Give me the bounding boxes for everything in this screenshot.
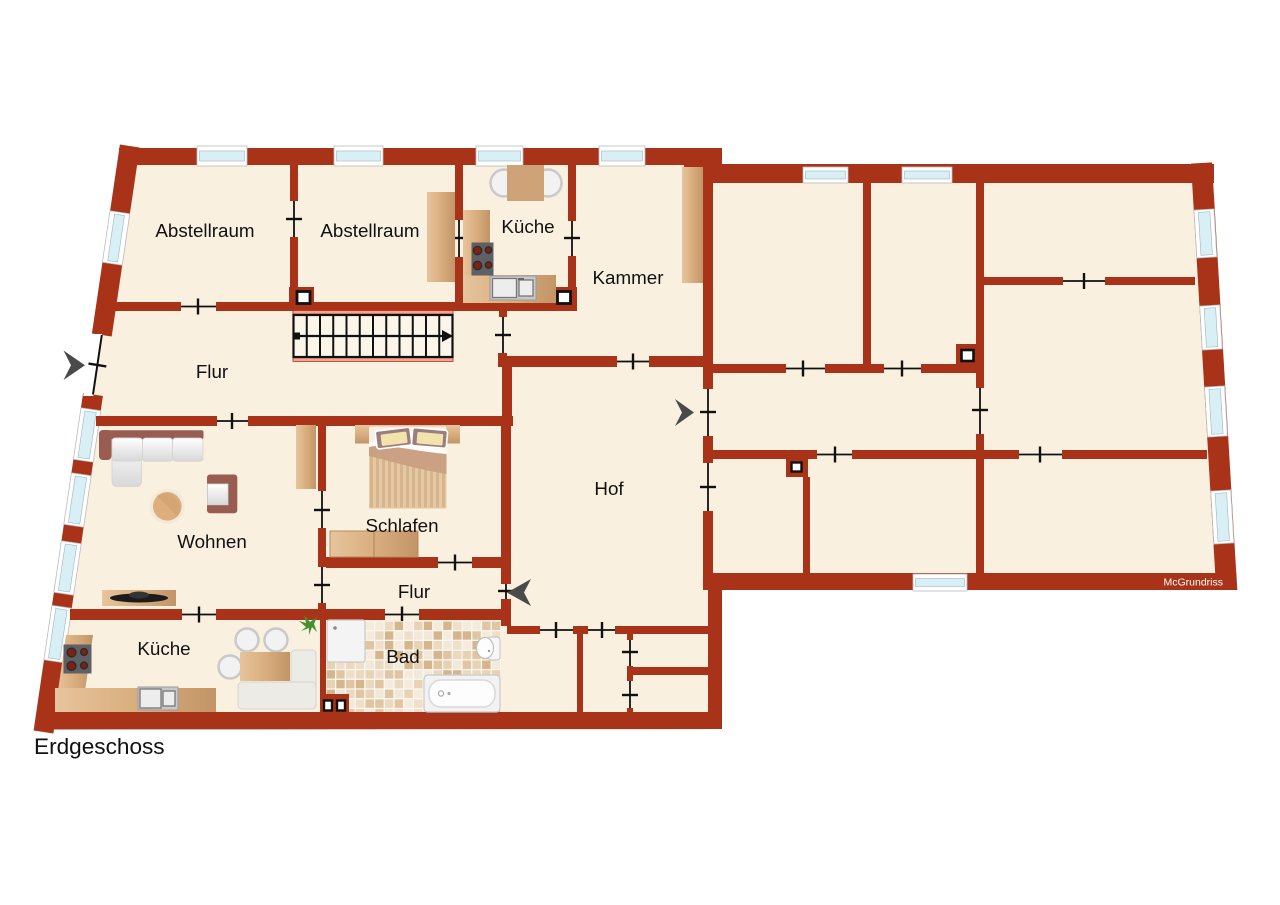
svg-text:Flur: Flur [398,581,430,602]
svg-text:Abstellraum: Abstellraum [320,220,419,241]
svg-text:Bad: Bad [386,646,419,667]
svg-text:Erdgeschoss: Erdgeschoss [34,734,165,759]
svg-text:Kammer: Kammer [593,267,664,288]
svg-text:Hof: Hof [594,478,624,499]
svg-text:Wohnen: Wohnen [177,531,247,552]
svg-text:Küche: Küche [501,216,554,237]
svg-text:Abstellraum: Abstellraum [155,220,254,241]
svg-text:Flur: Flur [196,361,228,382]
svg-text:Küche: Küche [137,638,190,659]
svg-text:McGrundriss: McGrundriss [1163,577,1223,589]
svg-text:Schlafen: Schlafen [365,515,438,536]
